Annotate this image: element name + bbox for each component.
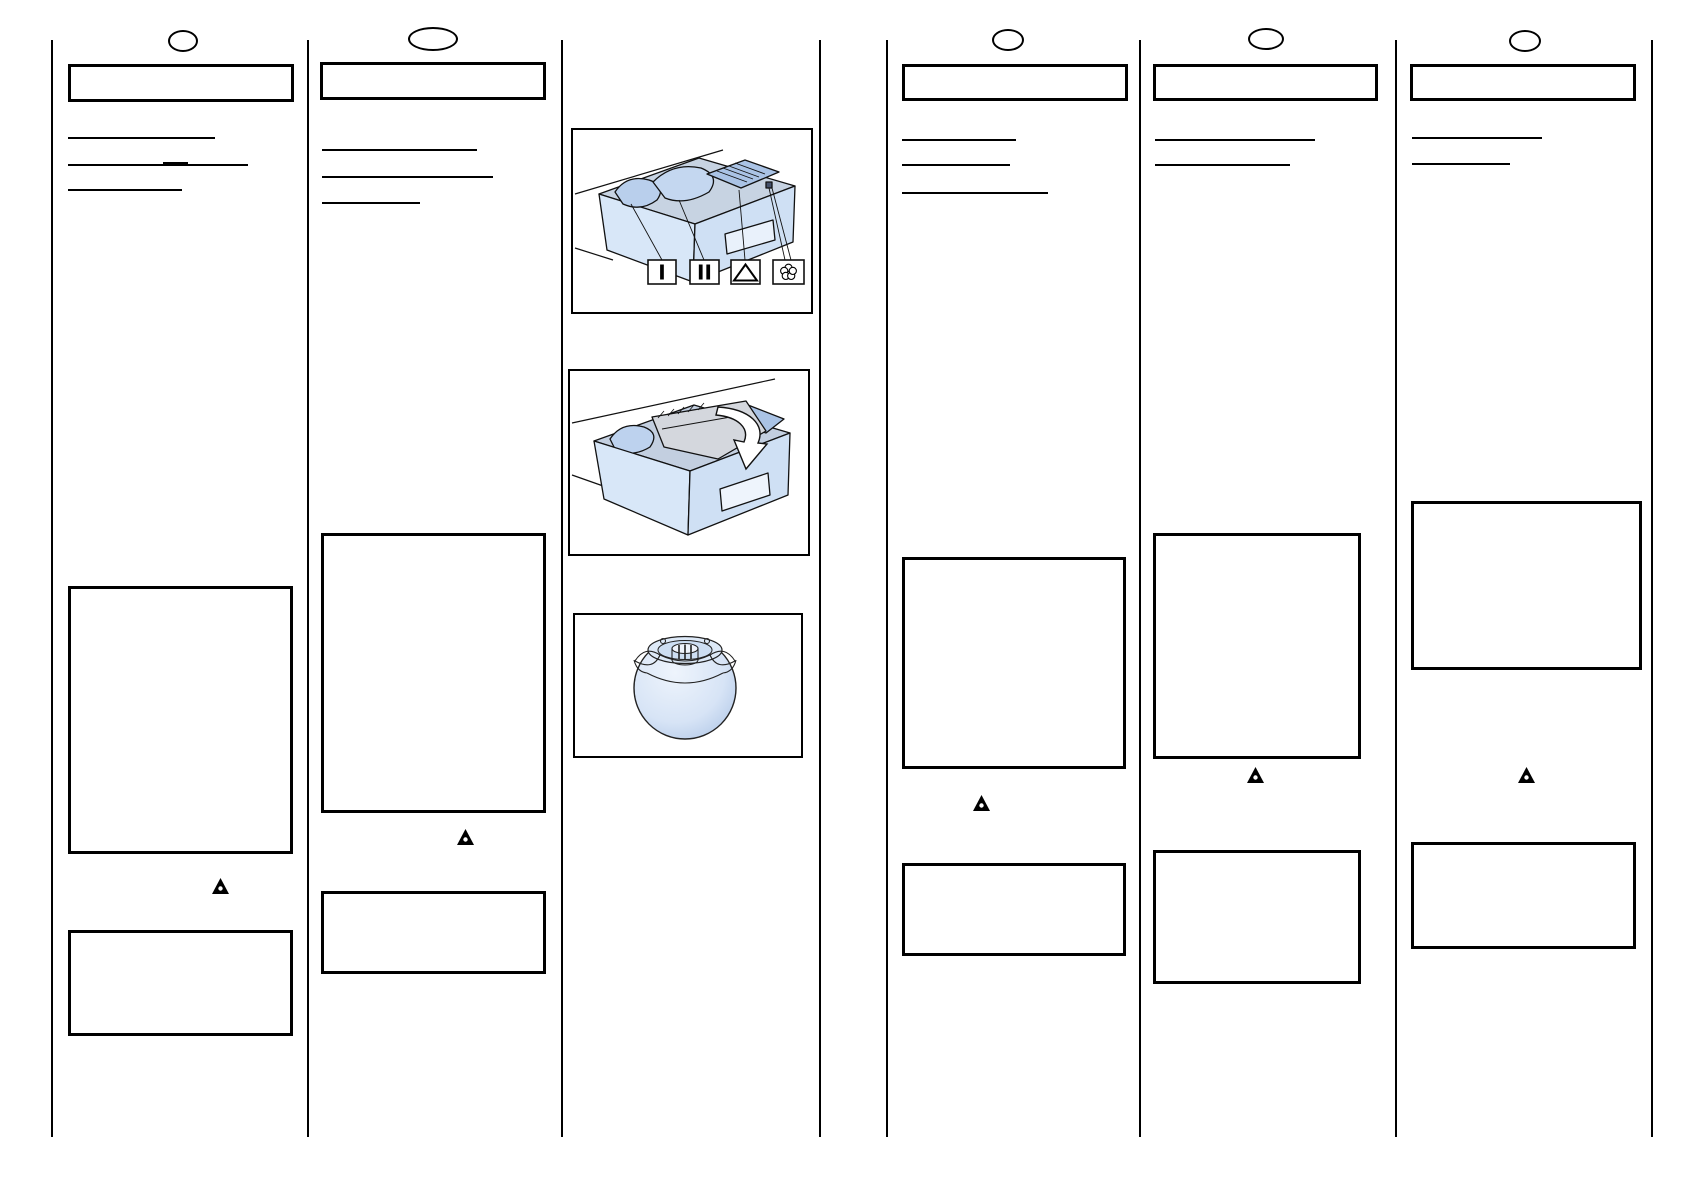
drawer-scoop-figure	[568, 369, 810, 556]
column-divider	[1651, 40, 1653, 1137]
column-divider	[819, 40, 821, 1137]
heading-underline	[1412, 137, 1542, 139]
content-box	[902, 557, 1126, 769]
symbol-box-flower	[773, 260, 804, 284]
heading-underline	[1412, 163, 1510, 165]
note-box	[902, 863, 1126, 956]
dosing-ball-figure	[573, 613, 803, 758]
content-box	[68, 586, 293, 854]
detergent-drawer-figure: I II	[571, 128, 813, 314]
column-divider	[886, 40, 888, 1137]
heading-underline	[322, 202, 420, 204]
column-divider	[307, 40, 309, 1137]
heading-underline-bold	[163, 162, 188, 166]
title-box	[1153, 64, 1378, 101]
page-number-oval	[1248, 28, 1284, 50]
column-divider	[51, 40, 53, 1137]
compartment-symbol-II: II	[697, 261, 712, 285]
note-box	[68, 930, 293, 1036]
heading-underline	[1155, 139, 1315, 141]
warning-triangle-icon	[1247, 767, 1264, 783]
warning-triangle-icon	[973, 795, 990, 811]
warning-triangle-icon	[457, 829, 474, 845]
note-box	[1153, 850, 1361, 984]
title-box	[320, 62, 546, 100]
heading-underline	[1155, 164, 1290, 166]
heading-underline	[68, 137, 215, 139]
content-box	[321, 533, 546, 813]
page-number-oval	[1509, 30, 1541, 52]
warning-triangle-icon	[1518, 767, 1535, 783]
heading-underline	[902, 164, 1010, 166]
manual-template-spread: I II	[0, 0, 1700, 1190]
heading-underline	[68, 189, 182, 191]
column-divider	[561, 40, 563, 1137]
heading-underline	[322, 176, 493, 178]
heading-underline	[322, 149, 477, 151]
heading-underline	[902, 192, 1048, 194]
title-box	[68, 64, 294, 102]
compartment-symbol-I: I	[658, 261, 665, 285]
heading-underline	[68, 164, 248, 166]
content-box	[1153, 533, 1361, 759]
heading-underline	[902, 139, 1016, 141]
warning-triangle-icon	[212, 878, 229, 894]
column-divider	[1139, 40, 1141, 1137]
note-box	[1411, 842, 1636, 949]
title-box	[1410, 64, 1636, 101]
siphon-cap	[766, 182, 772, 188]
title-box	[902, 64, 1128, 101]
page-number-oval	[408, 27, 458, 51]
page-number-oval	[992, 29, 1024, 51]
column-divider	[1395, 40, 1397, 1137]
note-box	[321, 891, 546, 974]
page-number-oval	[168, 30, 198, 52]
content-box	[1411, 501, 1642, 670]
